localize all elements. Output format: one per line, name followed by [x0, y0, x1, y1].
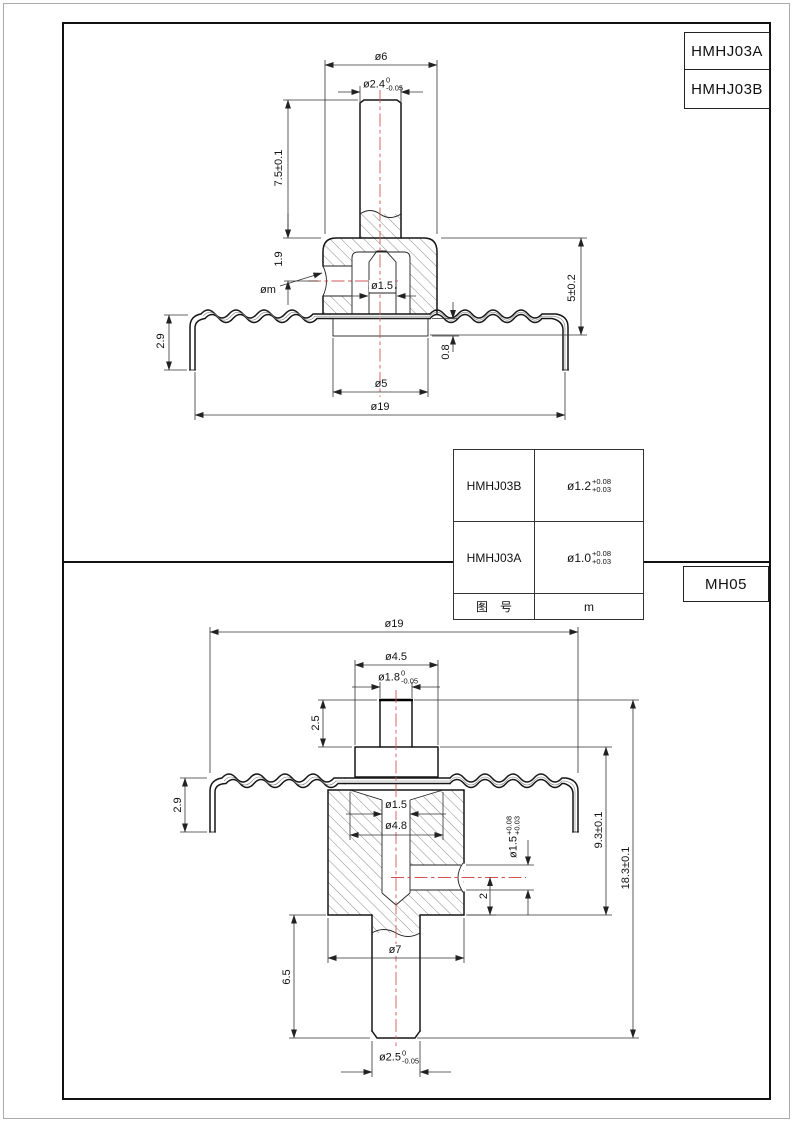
title-text-mh05: MH05: [705, 576, 747, 593]
dim-len0-8: 0.8: [440, 344, 452, 359]
dim-dia1-5-tol: ø1.5 +0.08+0.03: [506, 816, 521, 858]
spec-header-value: m: [535, 594, 644, 620]
dim-len5: 5±0.2: [566, 274, 578, 301]
spec-dia-b: ø1.2+0.08+0.03: [535, 450, 644, 522]
dim-dia2-4-main: ø2.4: [363, 78, 385, 90]
spec-model-a: HMHJ03A: [454, 522, 535, 594]
title-block-hmhj03b: HMHJ03B: [684, 69, 770, 109]
dim-dia19-bottom: ø19: [385, 618, 404, 630]
top-part-section: [164, 60, 587, 420]
title-block-mh05: MH05: [683, 566, 769, 602]
dim-len18-3: 18.3±0.1: [620, 847, 632, 890]
dim-len2: 2: [478, 893, 490, 899]
dim-len2-5: 2.5: [310, 715, 322, 730]
dim-len2-9-bottom: 2.9: [172, 797, 184, 812]
dim-dia6: ø6: [375, 51, 388, 63]
title-text-a: HMHJ03A: [691, 43, 763, 60]
spec-model-b: HMHJ03B: [454, 450, 535, 522]
dim-dia2-4-tol: 0-0.05: [386, 77, 403, 92]
dim-len9-3: 9.3±0.1: [593, 812, 605, 849]
dim-len7-5: 7.5±0.1: [273, 150, 285, 187]
spec-row-hmhj03b: HMHJ03B ø1.2+0.08+0.03: [454, 450, 644, 522]
spec-table: HMHJ03B ø1.2+0.08+0.03 HMHJ03A ø1.0+0.08…: [453, 449, 644, 620]
dim-dia5: ø5: [375, 378, 388, 390]
label-dia-m: øm: [260, 284, 276, 296]
dim-len6-5: 6.5: [281, 969, 293, 984]
spec-header-label: 图 号: [454, 594, 535, 620]
dim-dia1-5-top: ø1.5: [369, 280, 395, 292]
bottom-part-section: [180, 627, 639, 1077]
dim-len1-9: 1.9: [273, 251, 285, 266]
dim-dia4-5: ø4.5: [385, 651, 407, 663]
title-block-hmhj03a: HMHJ03A: [684, 32, 770, 71]
dim-dia1-8: ø1.8 0-0.05: [378, 670, 418, 685]
spec-row-header: 图 号 m: [454, 594, 644, 620]
dim-dia2-4: ø2.4 0-0.05: [363, 77, 403, 92]
dim-dia4-8: ø4.8: [383, 820, 409, 832]
drawing-sheet: { "titles": { "top_a": "HMHJ03A", "top_b…: [0, 0, 793, 1122]
dim-dia7: ø7: [387, 944, 404, 956]
dim-dia2-5: ø2.5 0-0.05: [379, 1050, 419, 1065]
spec-row-hmhj03a: HMHJ03A ø1.0+0.08+0.03: [454, 522, 644, 594]
dim-dia19-top: ø19: [371, 401, 390, 413]
dim-len2-9-top: 2.9: [155, 333, 167, 348]
spec-dia-a: ø1.0+0.08+0.03: [535, 522, 644, 594]
dim-dia1-5-bore: ø1.5: [383, 799, 409, 811]
title-text-b: HMHJ03B: [691, 81, 763, 98]
